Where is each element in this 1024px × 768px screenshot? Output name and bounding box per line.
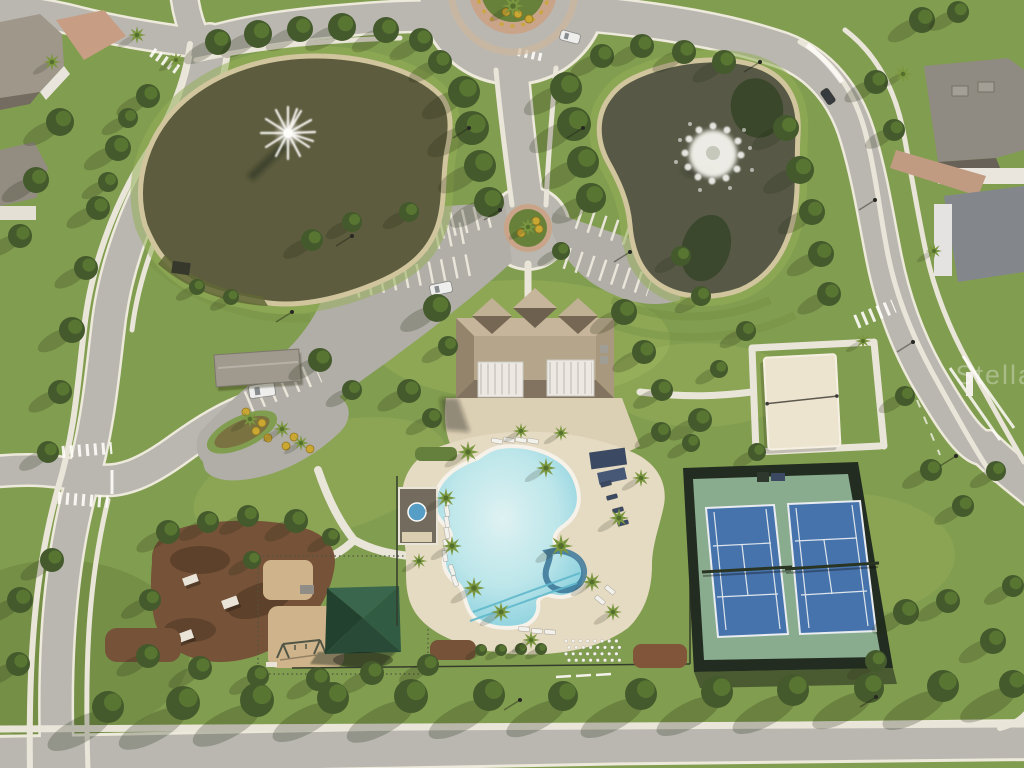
aerial-photo: Stellar <box>0 0 1024 768</box>
photo-tint <box>0 0 1024 768</box>
aerial-scene: Stellar <box>0 0 1024 768</box>
watermark: Stellar <box>955 360 1024 390</box>
